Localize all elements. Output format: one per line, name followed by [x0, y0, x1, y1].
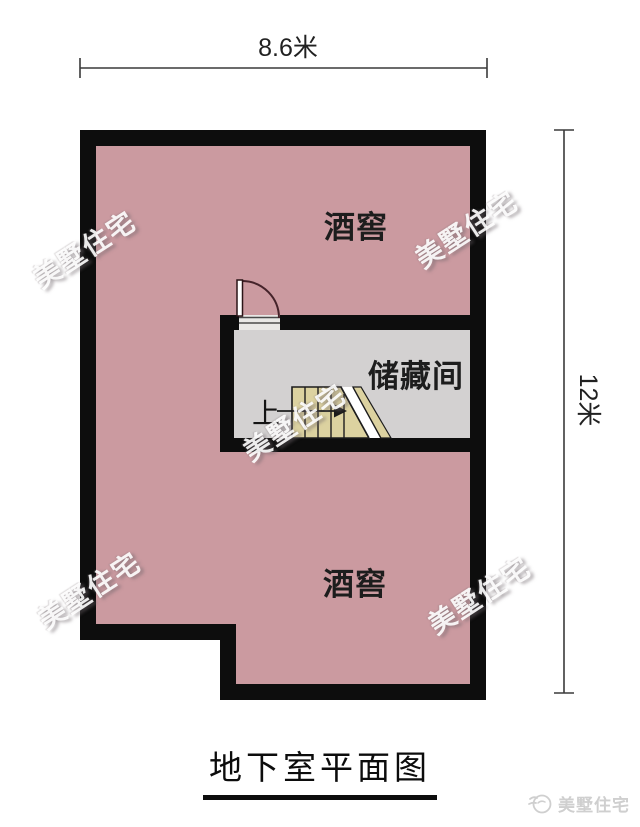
- room-label-wine-cellar-top: 酒窖: [296, 202, 416, 247]
- room-label-storage: 储藏间: [336, 351, 496, 396]
- floorplan-drawing: [0, 0, 640, 827]
- floorplan-page: 8.6米 12米 酒窖 储藏间 酒窖 上 美墅住宅 美墅住宅 美墅住宅 美墅住宅…: [0, 0, 640, 827]
- brand-logo: 美墅住宅: [527, 790, 630, 817]
- door-leaf: [237, 280, 243, 316]
- stairs-up-label: 上: [252, 392, 280, 432]
- page-title: 地下室平面图: [203, 741, 437, 800]
- room-label-wine-cellar-bottom: 酒窖: [295, 559, 415, 604]
- dimension-height-label: 12米: [572, 360, 608, 440]
- swallow-logo-icon: [527, 790, 554, 817]
- dimension-line-right: [554, 130, 574, 693]
- dimension-width-label: 8.6米: [238, 28, 338, 64]
- brand-logo-text: 美墅住宅: [558, 791, 630, 816]
